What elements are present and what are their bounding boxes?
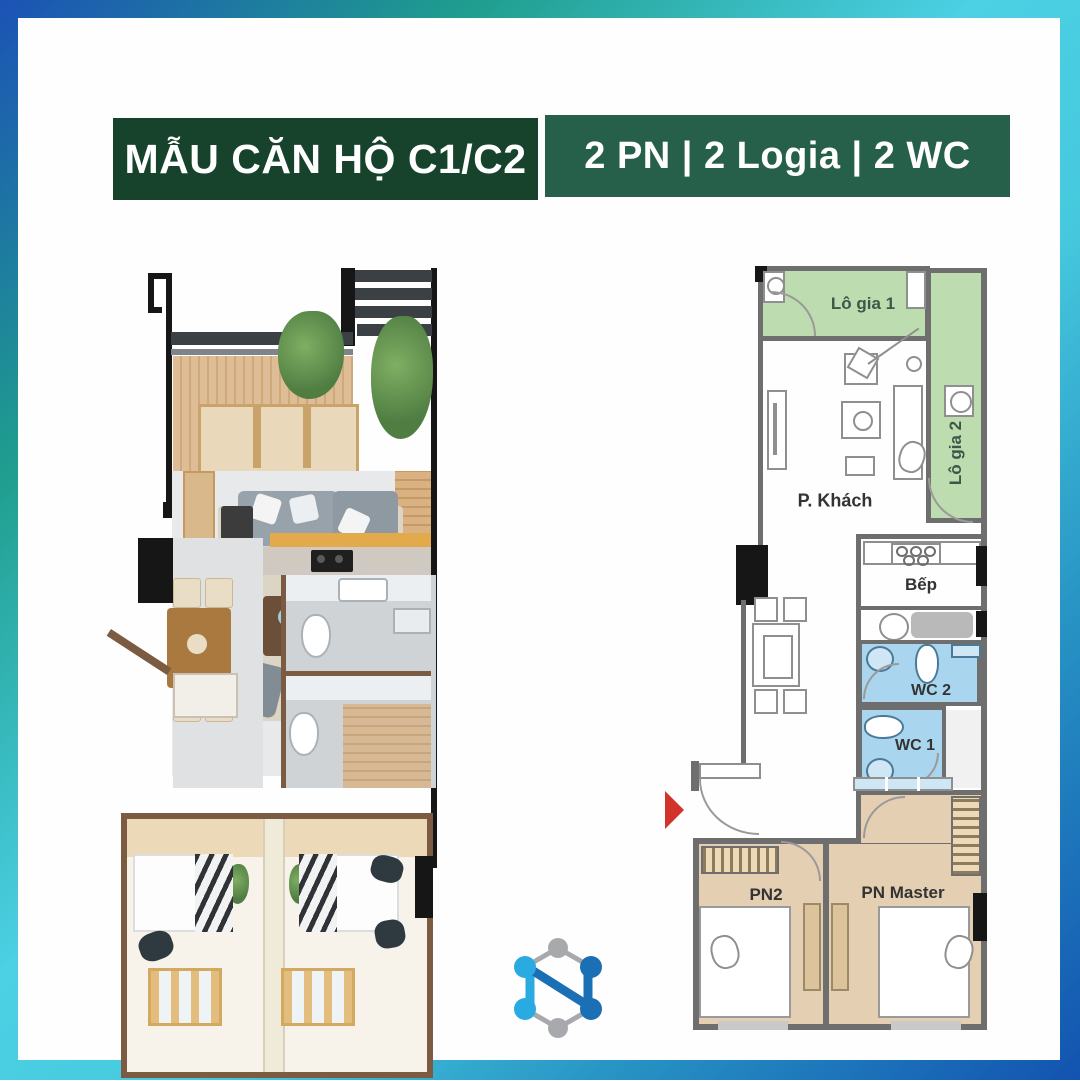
burner (917, 555, 929, 566)
bed-2d (699, 906, 791, 1018)
wall-black (138, 538, 175, 603)
logo-node-left-bottom (514, 998, 536, 1020)
window-mullion (917, 777, 920, 791)
toilet-icon (303, 616, 329, 656)
dining-chair-2d (783, 689, 807, 714)
toilet-icon (915, 644, 939, 684)
deck-slat (332, 971, 344, 1023)
room-label-logia1: Lô gia 1 (831, 294, 895, 314)
floor-lamp-icon (906, 356, 922, 372)
pergola-slat (354, 306, 432, 318)
plant-icon (371, 316, 433, 439)
decor (853, 411, 873, 431)
info-badge: 2 PN | 2 Logia | 2 WC (545, 115, 1010, 197)
entry-door-leaf (699, 763, 761, 779)
floor-plan-2d: Lô gia 1 Lô gia 2 P. Khách Bếp (663, 263, 998, 1038)
wall-black (973, 893, 987, 941)
window-strip (718, 1021, 788, 1030)
window-mullion (885, 777, 888, 791)
table-runner (763, 635, 793, 679)
deck-slat (312, 971, 324, 1023)
dining-chair (173, 578, 201, 608)
burner (335, 555, 343, 563)
room-divider (263, 819, 285, 1072)
pergola-slat (351, 288, 432, 300)
washer-drum (950, 391, 972, 413)
burner (317, 555, 325, 563)
wall-black (736, 545, 768, 605)
title-badge: MẪU CĂN HỘ C1/C2 (113, 118, 538, 200)
railing-post (303, 404, 311, 468)
counter-top (911, 612, 973, 638)
deck-slat (179, 971, 191, 1023)
room-label-logia2: Lô gia 2 (946, 421, 966, 485)
sofa-pillow (289, 494, 320, 525)
wall-divider (823, 838, 829, 1030)
deck-slat (199, 971, 211, 1023)
logo-node-left-top (514, 956, 536, 978)
content-card: MẪU CĂN HỘ C1/C2 2 PN | 2 Logia | 2 WC (18, 18, 1060, 1060)
room-label-kitchen: Bếp (905, 575, 937, 595)
side-table (221, 506, 253, 540)
wardrobe (701, 846, 779, 874)
dining-chair-2d (754, 597, 778, 622)
burner (903, 555, 915, 566)
toilet-icon (864, 715, 904, 739)
kitchen-cabinet (270, 533, 431, 547)
rail (107, 629, 172, 675)
wall-black (415, 856, 433, 918)
sink-icon (879, 613, 909, 641)
apartment-specs: 2 PN | 2 Logia | 2 WC (584, 135, 971, 178)
bath2-floor (343, 704, 431, 788)
wall-black (976, 611, 987, 637)
logo-node-right-top (580, 956, 602, 978)
window-strip (853, 777, 953, 791)
apartment-title: MẪU CĂN HỘ C1/C2 (124, 136, 526, 183)
wall (856, 534, 986, 539)
wardrobe (951, 796, 981, 876)
tv-cabinet (767, 390, 787, 470)
bed-blanket (299, 854, 337, 932)
wall (758, 336, 763, 545)
deck-slat (292, 971, 304, 1023)
logo-node-right-bottom (580, 998, 602, 1020)
wall (741, 600, 746, 763)
shoe-cabinet (173, 673, 238, 718)
bath-sink-icon (338, 578, 388, 602)
logo-node-top (548, 938, 568, 958)
logo-node-bottom (548, 1018, 568, 1038)
cabinet-2d (831, 903, 849, 991)
equipment-box (906, 271, 926, 309)
dining-chair (205, 578, 233, 608)
bath2-vanity (286, 676, 431, 700)
deck-slat (159, 971, 171, 1023)
railing-post (253, 404, 261, 468)
room-label-wc1: WC 1 (895, 737, 935, 755)
pergola-slat (348, 270, 432, 282)
cabinet-2d (803, 903, 821, 991)
floor-plan-3d (103, 256, 443, 1081)
room-label-wc2: WC 2 (911, 682, 951, 700)
wall-stub (691, 761, 699, 791)
room-label-living: P. Khách (798, 491, 873, 512)
balcony-railing (198, 404, 359, 474)
tv-icon (773, 403, 777, 455)
room-label-master: PN Master (861, 883, 944, 903)
dining-chair-2d (754, 689, 778, 714)
background-gradient: MẪU CĂN HỘ C1/C2 2 PN | 2 Logia | 2 WC (0, 0, 1080, 1080)
dining-chair-2d (783, 597, 807, 622)
room-label-pn2: PN2 (749, 885, 782, 905)
wall (856, 606, 986, 610)
wall-black (976, 546, 987, 586)
brand-logo (508, 936, 608, 1040)
stool (845, 456, 875, 476)
entrance-arrow-icon (665, 791, 684, 829)
table-decor (187, 634, 207, 654)
wall (148, 307, 162, 313)
shelf (951, 644, 981, 658)
window-strip (891, 1021, 961, 1030)
entry-door-arc (699, 779, 759, 835)
bath-shelf (393, 608, 431, 634)
toilet-icon (291, 714, 317, 754)
bed-blanket (195, 854, 233, 932)
